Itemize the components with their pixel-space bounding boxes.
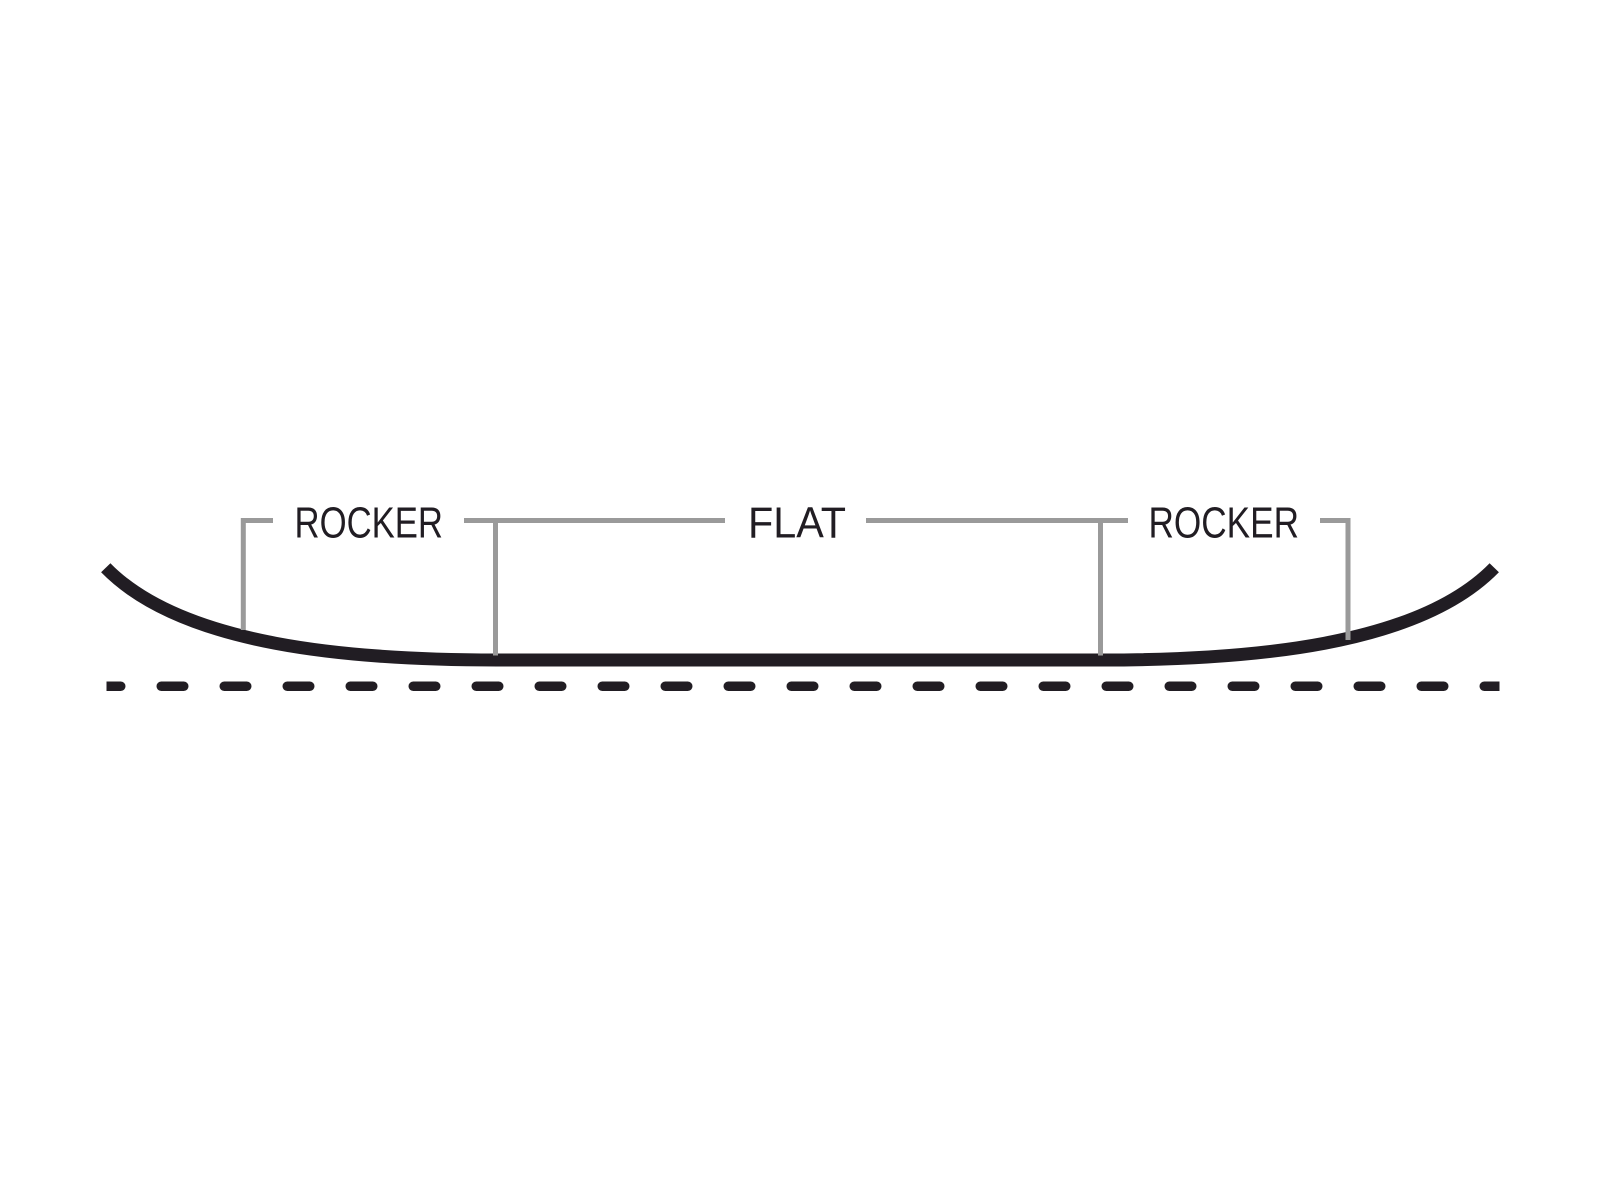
- svg-text:ROCKER: ROCKER: [1149, 500, 1300, 548]
- svg-text:FLAT: FLAT: [748, 500, 846, 548]
- svg-text:ROCKER: ROCKER: [295, 500, 444, 548]
